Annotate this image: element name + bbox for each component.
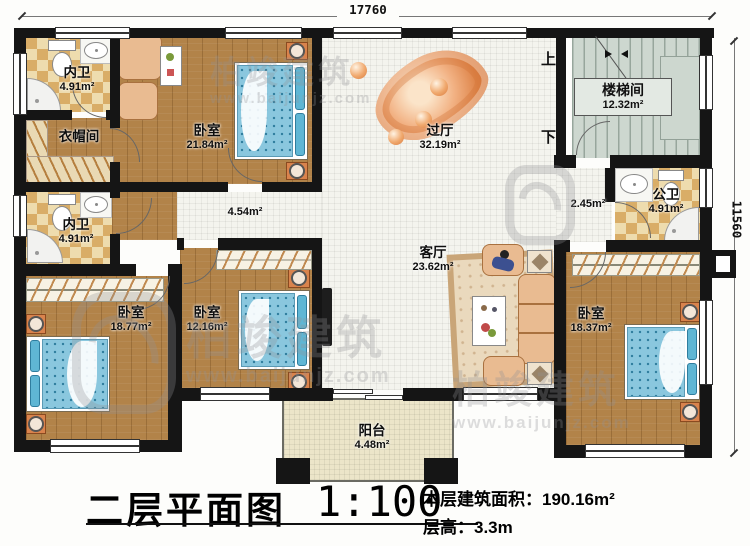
toilet bbox=[48, 194, 76, 205]
rug-ball bbox=[430, 78, 448, 96]
nightstand bbox=[286, 162, 308, 180]
lamp-icon bbox=[289, 163, 305, 179]
side-table bbox=[527, 250, 552, 273]
room-label-bath-mid: 内卫 4.91m² bbox=[59, 218, 94, 245]
room-name: 内卫 bbox=[59, 218, 94, 233]
sink bbox=[84, 196, 108, 213]
dimension-tick bbox=[708, 12, 716, 20]
wall bbox=[110, 112, 120, 128]
room-name: 卧室 bbox=[187, 124, 228, 139]
stair-up-label: 上 bbox=[541, 48, 556, 69]
wall bbox=[14, 182, 228, 192]
room-area: 18.37m² bbox=[571, 322, 612, 335]
tv bbox=[322, 288, 332, 346]
wall bbox=[554, 240, 570, 252]
room-name: 客厅 bbox=[413, 246, 454, 261]
wall bbox=[273, 388, 333, 401]
bed bbox=[234, 62, 308, 160]
wall bbox=[177, 238, 184, 250]
toilet bbox=[658, 170, 684, 181]
window bbox=[452, 27, 527, 39]
room-name: 卧室 bbox=[571, 307, 612, 322]
room-name: 公卫 bbox=[649, 188, 684, 203]
wall bbox=[110, 38, 120, 112]
room-area: 4.91m² bbox=[59, 233, 94, 246]
window bbox=[50, 439, 140, 453]
plan-title: 二层平面图 bbox=[86, 480, 286, 534]
room-name: 衣帽间 bbox=[59, 130, 100, 145]
room-area: 4.54m² bbox=[228, 206, 263, 219]
room-name: 阳台 bbox=[355, 424, 390, 439]
sofa bbox=[118, 82, 158, 120]
room-label-bedroom-bm: 卧室 12.16m² bbox=[187, 306, 228, 333]
sofa bbox=[118, 34, 162, 80]
bed bbox=[624, 324, 700, 400]
room-label-hall: 过厅 32.19m² bbox=[420, 124, 461, 151]
room-label-bath-public: 公卫 4.91m² bbox=[649, 188, 684, 215]
sink bbox=[620, 174, 648, 194]
coffee-table bbox=[472, 296, 506, 346]
wall bbox=[312, 38, 322, 192]
room-area: 23.62m² bbox=[413, 261, 454, 274]
room-area: 2.45m² bbox=[571, 198, 606, 211]
room-label-corridor: 4.54m² bbox=[228, 206, 263, 219]
room-area: 18.77m² bbox=[111, 321, 152, 334]
room-label-living: 客厅 23.62m² bbox=[413, 246, 454, 273]
wall bbox=[610, 155, 712, 168]
stairwell-label-box: 楼梯间 12.32m² bbox=[574, 78, 672, 116]
room-label-bedroom-bl: 卧室 18.77m² bbox=[111, 306, 152, 333]
window bbox=[13, 53, 27, 115]
room-label-bath-top: 内卫 4.91m² bbox=[60, 66, 95, 93]
armchair bbox=[483, 356, 525, 386]
wall bbox=[554, 242, 566, 458]
desk bbox=[160, 46, 182, 86]
bed bbox=[238, 290, 310, 370]
wall bbox=[168, 264, 182, 388]
rug-ball bbox=[388, 129, 404, 145]
room-area: 12.32m² bbox=[603, 99, 644, 111]
wall bbox=[110, 162, 120, 184]
nightstand bbox=[26, 414, 46, 434]
side-table bbox=[527, 362, 552, 385]
window bbox=[699, 300, 713, 385]
nightstand bbox=[288, 268, 310, 288]
window bbox=[333, 27, 402, 39]
wall bbox=[605, 168, 615, 202]
rug-ball bbox=[350, 62, 367, 79]
room-label-corridor-right: 2.45m² bbox=[571, 198, 606, 211]
dimension-tick bbox=[730, 449, 738, 457]
wall bbox=[554, 155, 576, 168]
window bbox=[699, 168, 713, 208]
sliding-door bbox=[365, 395, 403, 400]
stair-arrow-icon bbox=[621, 50, 628, 58]
sink bbox=[84, 42, 108, 59]
lamp-icon bbox=[291, 270, 307, 286]
title-underline bbox=[86, 523, 478, 525]
room-name: 卧室 bbox=[111, 306, 152, 321]
wall bbox=[606, 240, 712, 252]
room-name: 楼梯间 bbox=[602, 83, 644, 98]
window bbox=[699, 55, 713, 110]
floor-plan: 楼梯间 12.32m² 上 下 bbox=[0, 0, 750, 546]
room-label-cloakroom: 衣帽间 bbox=[59, 130, 100, 145]
room-area: 4.91m² bbox=[649, 203, 684, 216]
lamp-icon bbox=[682, 304, 698, 320]
sofa bbox=[518, 274, 556, 364]
lamp-icon bbox=[289, 43, 305, 59]
wardrobe bbox=[216, 250, 312, 270]
stair-arrow-icon bbox=[605, 50, 612, 58]
room-name: 过厅 bbox=[420, 124, 461, 139]
floor-area-text: 本层建筑面积：190.16m² bbox=[423, 485, 615, 510]
room-area: 32.19m² bbox=[420, 139, 461, 152]
toilet bbox=[48, 40, 76, 51]
bed bbox=[26, 336, 110, 412]
clothes-rack bbox=[26, 156, 114, 184]
room-label-balcony: 阳台 4.48m² bbox=[355, 424, 390, 451]
room-label-bedroom-tl: 卧室 21.84m² bbox=[187, 124, 228, 151]
nightstand bbox=[26, 314, 46, 334]
wall bbox=[110, 234, 120, 268]
dimension-right-value: 11560 bbox=[730, 191, 745, 249]
window bbox=[13, 195, 27, 237]
lamp-icon bbox=[682, 404, 698, 420]
window bbox=[585, 444, 685, 458]
nightstand bbox=[680, 302, 700, 322]
room-name: 内卫 bbox=[60, 66, 95, 81]
wall bbox=[218, 238, 322, 250]
room-area: 21.84m² bbox=[187, 139, 228, 152]
dimension-top-value: 17760 bbox=[337, 2, 399, 17]
wall bbox=[556, 38, 566, 155]
sliding-door bbox=[333, 389, 373, 394]
floor-height-text: 层高：3.3m bbox=[423, 513, 513, 538]
duct-shaft bbox=[710, 250, 736, 278]
room-area: 4.91m² bbox=[60, 81, 95, 94]
nightstand bbox=[286, 42, 308, 60]
stair-down-label: 下 bbox=[541, 126, 556, 147]
window bbox=[200, 387, 270, 401]
wall bbox=[14, 264, 136, 276]
room-label-bedroom-br: 卧室 18.37m² bbox=[571, 307, 612, 334]
nightstand bbox=[680, 402, 700, 422]
window bbox=[55, 27, 130, 39]
room-name: 卧室 bbox=[187, 306, 228, 321]
window bbox=[463, 387, 538, 401]
room-area: 12.16m² bbox=[187, 321, 228, 334]
room-area: 4.48m² bbox=[355, 439, 390, 452]
lamp-icon bbox=[28, 316, 44, 332]
window bbox=[225, 27, 302, 39]
wall bbox=[312, 240, 322, 388]
lamp-icon bbox=[28, 416, 44, 432]
